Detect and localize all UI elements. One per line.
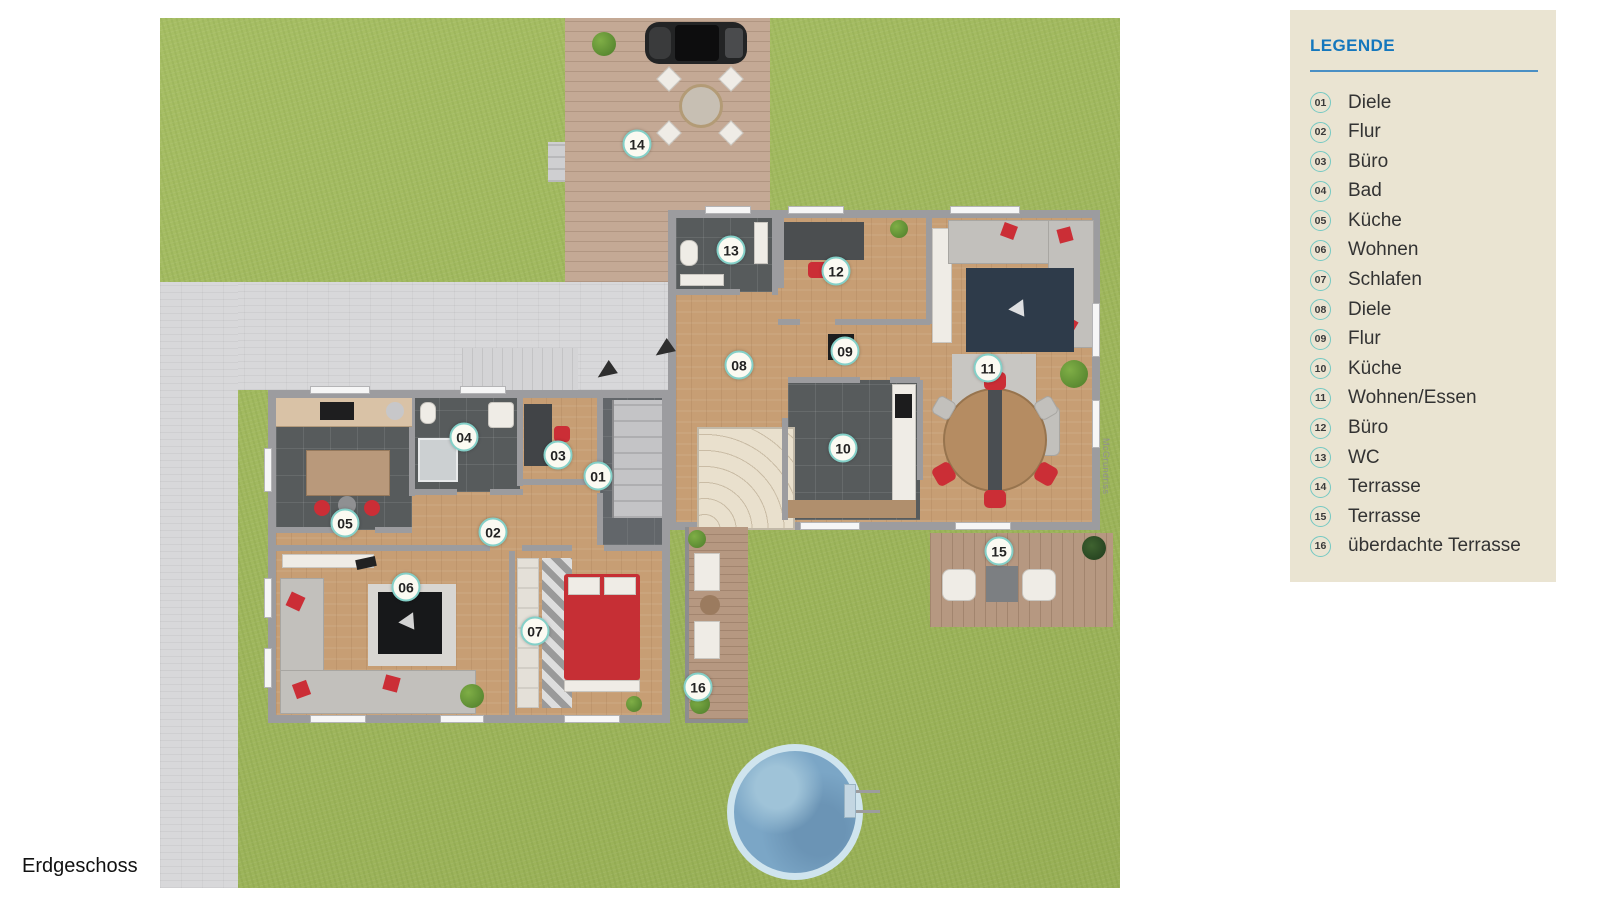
legend-list: 01Diele 02Flur 03Büro 04Bad 05Küche 06Wo… — [1310, 92, 1556, 557]
wall — [890, 377, 920, 383]
legend-item: 04Bad — [1310, 181, 1556, 202]
kitchen-10-cooktop — [895, 394, 912, 418]
room-badge-04: 04 — [450, 423, 479, 452]
window — [1092, 303, 1100, 357]
legend-item: 16überdachte Terrasse — [1310, 536, 1556, 557]
legend-item-label: WC — [1348, 447, 1380, 469]
bush — [592, 32, 616, 56]
wall — [835, 319, 930, 325]
window — [440, 715, 484, 723]
legend-item-label: Wohnen — [1348, 239, 1418, 261]
paved-side-path — [160, 282, 238, 888]
legend-item: 11Wohnen/Essen — [1310, 388, 1556, 409]
legend-item-number: 07 — [1310, 270, 1331, 291]
legend-item: 09Flur — [1310, 329, 1556, 350]
legend-item-number: 04 — [1310, 181, 1331, 202]
legend-item-label: Terrasse — [1348, 476, 1421, 498]
legend-item: 03Büro — [1310, 151, 1556, 172]
legend-title: LEGENDE — [1310, 36, 1556, 56]
window — [310, 715, 366, 723]
wall — [778, 319, 800, 325]
wall — [788, 377, 860, 383]
legend-item-number: 15 — [1310, 506, 1331, 527]
legend-item-label: Schlafen — [1348, 269, 1422, 291]
side-table — [700, 595, 720, 615]
wall — [490, 489, 523, 495]
badge-number: 15 — [991, 543, 1007, 559]
pool-ladder-step — [844, 784, 856, 818]
legend-item: 15Terrasse — [1310, 506, 1556, 527]
legend-item-number: 09 — [1310, 329, 1331, 350]
room-badge-02: 02 — [479, 518, 508, 547]
wall — [375, 527, 412, 533]
window — [264, 578, 272, 618]
window — [460, 386, 506, 394]
coffee-table — [986, 566, 1018, 602]
badge-number: 14 — [629, 136, 645, 152]
pool-ladder-rail — [854, 810, 880, 813]
plant — [1060, 360, 1088, 388]
badge-number: 08 — [731, 357, 747, 373]
lounger — [694, 553, 720, 591]
legend-item: 10Küche — [1310, 358, 1556, 379]
wall — [597, 493, 603, 545]
room-badge-09: 09 — [831, 337, 860, 366]
armchair — [1022, 569, 1056, 601]
legend-panel: LEGENDE 01Diele 02Flur 03Büro 04Bad 05Kü… — [1290, 10, 1556, 582]
legend-item-number: 12 — [1310, 418, 1331, 439]
legend-item-label: überdachte Terrasse — [1348, 535, 1521, 557]
dining-chair — [984, 490, 1006, 508]
badge-number: 13 — [723, 242, 739, 258]
legend-item-label: Flur — [1348, 328, 1381, 350]
legend-item-label: Küche — [1348, 210, 1402, 232]
wall — [276, 527, 336, 533]
tv-06 — [378, 592, 442, 654]
car-roof — [675, 25, 719, 61]
window — [705, 206, 751, 214]
kitchen-10-lower-cabinets — [788, 500, 916, 518]
legend-item: 14Terrasse — [1310, 477, 1556, 498]
legend-item-label: Büro — [1348, 417, 1388, 439]
legend-item-number: 10 — [1310, 358, 1331, 379]
badge-number: 01 — [590, 468, 606, 484]
badge-number: 16 — [690, 679, 706, 695]
legend-item-label: Küche — [1348, 358, 1402, 380]
badge-number: 03 — [550, 447, 566, 463]
wall — [276, 545, 490, 551]
legend-item-label: Terrasse — [1348, 506, 1421, 528]
deck-table — [679, 84, 723, 128]
legend-item-number: 16 — [1310, 536, 1331, 557]
legend-item: 08Diele — [1310, 299, 1556, 320]
legend-item-number: 06 — [1310, 240, 1331, 261]
legend-item-label: Büro — [1348, 151, 1388, 173]
legend-item-number: 03 — [1310, 151, 1331, 172]
badge-number: 12 — [828, 263, 844, 279]
window — [564, 715, 620, 723]
play-icon — [1008, 299, 1031, 322]
room-badge-07: 07 — [521, 617, 550, 646]
room-badge-05: 05 — [331, 509, 360, 538]
window — [955, 522, 1011, 530]
badge-number: 09 — [837, 343, 853, 359]
room-badge-06: 06 — [392, 573, 421, 602]
legend-item-number: 05 — [1310, 210, 1331, 231]
legend-item-label: Wohnen/Essen — [1348, 387, 1477, 409]
legend-item: 02Flur — [1310, 122, 1556, 143]
stairs-left-unit — [612, 400, 662, 518]
plant — [460, 684, 484, 708]
bed-bench — [564, 680, 640, 692]
window — [800, 522, 860, 530]
office-12-desk — [784, 222, 864, 260]
bed-pillow — [604, 577, 636, 595]
washer — [488, 402, 514, 428]
pool-ladder-rail — [854, 790, 880, 793]
room-badge-11: 11 — [974, 354, 1003, 383]
bath-toilet — [420, 402, 436, 424]
room-badge-08: 08 — [725, 351, 754, 380]
plant — [688, 530, 706, 548]
wc-toilet — [680, 240, 698, 266]
window — [264, 648, 272, 688]
legend-item-label: Diele — [1348, 92, 1391, 114]
window — [310, 386, 370, 394]
floor-plan-image: McGrundriss 01 02 03 04 05 06 07 08 09 1… — [160, 18, 1120, 888]
play-icon — [398, 612, 421, 635]
wall — [676, 289, 740, 295]
wc-cabinet — [754, 222, 768, 264]
wc-sink — [680, 274, 724, 286]
watermark: McGrundriss — [1101, 438, 1111, 495]
wall — [597, 398, 603, 468]
legend-item-number: 13 — [1310, 447, 1331, 468]
window — [264, 448, 272, 492]
plant-dark — [1082, 536, 1106, 560]
table-runner — [988, 390, 1002, 490]
legend-divider — [1310, 70, 1538, 72]
legend-item-label: Flur — [1348, 121, 1381, 143]
window — [950, 206, 1020, 214]
wall — [509, 551, 515, 715]
lounger — [694, 621, 720, 659]
stool — [314, 500, 330, 516]
legend-item: 12Büro — [1310, 418, 1556, 439]
plant — [626, 696, 642, 712]
stool — [364, 500, 380, 516]
badge-number: 06 — [398, 579, 414, 595]
legend-item: 13WC — [1310, 447, 1556, 468]
wall — [522, 545, 572, 551]
pool — [727, 744, 863, 880]
badge-number: 10 — [835, 440, 851, 456]
legend-item-number: 01 — [1310, 92, 1331, 113]
legend-item: 05Küche — [1310, 210, 1556, 231]
room-badge-12: 12 — [822, 257, 851, 286]
room-badge-16: 16 — [684, 673, 713, 702]
legend-item: 01Diele — [1310, 92, 1556, 113]
wall — [517, 398, 523, 486]
room-badge-10: 10 — [829, 434, 858, 463]
badge-number: 04 — [456, 429, 472, 445]
badge-number: 11 — [981, 360, 996, 376]
room-badge-13: 13 — [717, 236, 746, 265]
plant — [890, 220, 908, 238]
legend-item-label: Diele — [1348, 299, 1391, 321]
legend-item: 07Schlafen — [1310, 270, 1556, 291]
kitchen-05-sink — [386, 402, 404, 420]
bed-pillow — [568, 577, 600, 595]
stairs-right-unit — [697, 427, 795, 530]
armchair — [942, 569, 976, 601]
badge-number: 05 — [337, 515, 353, 531]
kitchen-island — [306, 450, 390, 496]
tv-rug — [966, 268, 1074, 352]
room-badge-03: 03 — [544, 441, 573, 470]
deck-side-steps — [548, 142, 565, 182]
legend-item-label: Bad — [1348, 180, 1382, 202]
legend-item-number: 14 — [1310, 477, 1331, 498]
kitchen-05-cooktop — [320, 402, 354, 420]
badge-number: 07 — [527, 623, 543, 639]
car-trunk — [725, 28, 743, 58]
legend-item-number: 08 — [1310, 299, 1331, 320]
car-hood — [649, 27, 671, 59]
wall — [412, 489, 457, 495]
window — [788, 206, 844, 214]
room-badge-15: 15 — [985, 537, 1014, 566]
window — [1092, 400, 1100, 448]
legend-item: 06Wohnen — [1310, 240, 1556, 261]
room-badge-01: 01 — [584, 462, 613, 491]
wall — [917, 380, 923, 480]
car — [645, 22, 747, 64]
room-badge-14: 14 — [623, 130, 652, 159]
entrance-steps — [462, 348, 578, 390]
badge-number: 02 — [485, 524, 501, 540]
legend-item-number: 02 — [1310, 122, 1331, 143]
wall — [604, 545, 662, 551]
floor-label: Erdgeschoss — [22, 855, 138, 878]
legend-item-number: 11 — [1310, 388, 1331, 409]
